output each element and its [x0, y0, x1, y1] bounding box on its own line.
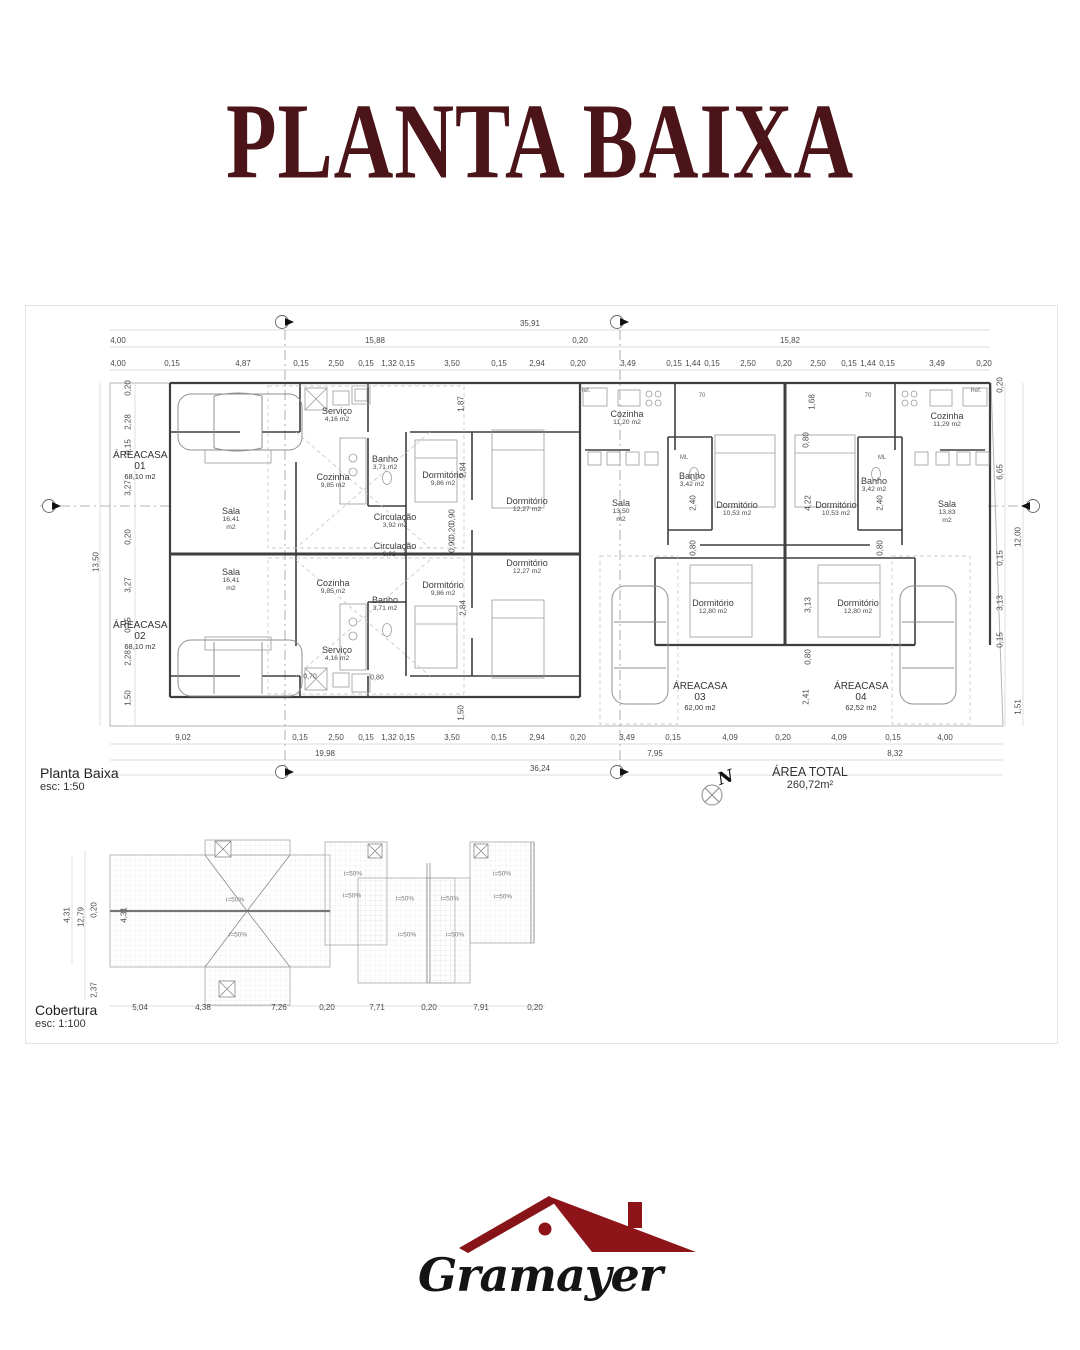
dim-value: 12,00 — [1014, 527, 1023, 547]
dim-value: 1,50 — [124, 690, 133, 706]
area: 4,16 m2 — [322, 416, 352, 424]
dim-value: 1,44 — [685, 359, 701, 368]
area: 9,85 m2 — [316, 482, 349, 490]
name: Dormitório — [506, 496, 548, 506]
dim-value: 0,20 — [976, 359, 992, 368]
dim-value: 2,94 — [529, 733, 545, 742]
dim-value: 4,31 — [120, 907, 129, 923]
room-label: Dormitório9,86 m2 — [422, 470, 464, 488]
dim-value: 0,15 — [879, 359, 895, 368]
dim-value: 0,15 — [358, 733, 374, 742]
area: 9,85 m2 — [316, 588, 349, 596]
dim-value: 0,15 — [399, 359, 415, 368]
name: Sala — [612, 498, 630, 508]
page: PLANTA BAIXA — [0, 0, 1080, 1350]
area: 62,00 m2 — [673, 703, 727, 712]
dim-value: 0,15 — [704, 359, 720, 368]
area: 9,86 m2 — [422, 590, 464, 598]
area: 16,41 m2 — [222, 577, 240, 593]
room-label: Dormitório9,86 m2 — [422, 580, 464, 598]
dim-value: 0,80 — [802, 432, 811, 448]
plan-caption-title: Planta Baixa — [40, 765, 119, 781]
dim-value: 0,15 — [491, 733, 507, 742]
roof-caption: Cobertura esc: 1:100 — [35, 1002, 97, 1031]
dim-value: 1,32 — [381, 359, 397, 368]
dim-value: 4,22 — [804, 495, 813, 511]
dim-value: 3,27 — [124, 480, 133, 496]
name: Dormitório — [837, 598, 879, 608]
dim-value: 4,00 — [110, 359, 126, 368]
room-label: Cozinha11,29 m2 — [930, 411, 963, 429]
dim-value: 8,32 — [887, 749, 903, 758]
dim-value: 7,95 — [647, 749, 663, 758]
dim-value: 1,68 — [808, 394, 817, 410]
name: Dormitório — [422, 470, 464, 480]
slope-label: i=50% — [343, 893, 361, 900]
dim-value: 1,87 — [457, 396, 466, 412]
dim-value: 2,37 — [90, 982, 99, 998]
name: ÁREACASA 03 — [673, 681, 727, 703]
dim-value: 3,50 — [444, 359, 460, 368]
name: Banho — [372, 595, 398, 605]
plan-sheet-card — [25, 305, 1058, 1044]
name: Cozinha — [610, 409, 643, 419]
dim-value: 0,80 — [689, 540, 698, 556]
area: 3,92 m2 — [374, 551, 417, 559]
plan-caption: Planta Baixa esc: 1:50 — [40, 765, 119, 794]
dim-value: 13,50 — [92, 552, 101, 572]
name: Banho — [861, 476, 887, 486]
dim-value: 4,38 — [195, 1003, 211, 1012]
dim-value: 0,20 — [996, 377, 1005, 393]
area: 3,92 m2 — [374, 522, 417, 530]
roof-caption-title: Cobertura — [35, 1002, 97, 1018]
dim-value: 2,40 — [876, 495, 885, 511]
area: 9,86 m2 — [422, 480, 464, 488]
slope-label: i=50% — [344, 871, 362, 878]
room-label: Cozinha9,85 m2 — [316, 578, 349, 596]
area: 62,52 m2 — [834, 703, 888, 712]
area: 10,53 m2 — [716, 510, 758, 518]
dim-value: 2,28 — [124, 650, 133, 666]
dim-value: 7,91 — [473, 1003, 489, 1012]
dim-value: 3,49 — [620, 359, 636, 368]
dim-value: 2,50 — [328, 733, 344, 742]
name: ÁREACASA 01 — [113, 450, 167, 472]
house-area-label: ÁREACASA 0362,00 m2 — [673, 681, 727, 712]
dim-row-bottom-3: 36,24 — [0, 764, 1080, 774]
appliance-label: 70 — [865, 393, 872, 399]
name: Serviço — [322, 645, 352, 655]
name: ÁREACASA 04 — [834, 681, 888, 703]
dim-value: 3,49 — [929, 359, 945, 368]
dim-row-top-3: 4,000,154,870,152,500,151,320,153,500,15… — [0, 359, 1080, 369]
slope-label: i=50% — [493, 871, 511, 878]
dim-value: 0,20 — [572, 336, 588, 345]
dim-value: 0,15 — [292, 733, 308, 742]
dim-value: 0,80 — [370, 675, 384, 682]
dim-value: 0,20 — [775, 733, 791, 742]
dim-value: 0,15 — [996, 550, 1005, 566]
area: 12,27 m2 — [506, 568, 548, 576]
dim-value: 0,15 — [399, 733, 415, 742]
name: Sala — [222, 506, 240, 516]
dim-value: 1,51 — [1014, 699, 1023, 715]
dim-value: 0,15 — [358, 359, 374, 368]
name: Dormitório — [815, 500, 857, 510]
dim-value: 0,20 — [776, 359, 792, 368]
room-label: Sala16,41 m2 — [222, 506, 240, 532]
name: Cozinha — [930, 411, 963, 421]
room-label: Dormitório12,27 m2 — [506, 496, 548, 514]
dim-value: 0,20 — [319, 1003, 335, 1012]
dim-value: 7,26 — [271, 1003, 287, 1012]
area-total: ÁREA TOTAL 260,72m² — [735, 765, 885, 792]
house-area-label: ÁREACASA 0462,52 m2 — [834, 681, 888, 712]
page-title: PLANTA BAIXA — [54, 78, 1026, 203]
name: Dormitório — [716, 500, 758, 510]
dim-value: 0,90 — [448, 537, 457, 553]
room-label: Banho3,42 m2 — [861, 476, 887, 494]
dim-value: 9,02 — [175, 733, 191, 742]
area: 13,50 m2 — [612, 508, 630, 524]
appliance-label: ML — [680, 455, 688, 461]
room-label: Cozinha11,20 m2 — [610, 409, 643, 427]
name: Dormitório — [692, 598, 734, 608]
roof-dim-row-bottom: 5,044,387,260,207,710,207,910,20 — [0, 1003, 1080, 1013]
area: 3,42 m2 — [679, 481, 705, 489]
dim-value: 2,50 — [740, 359, 756, 368]
dim-value: 0,20 — [124, 529, 133, 545]
dim-value: 0,20 — [527, 1003, 543, 1012]
dim-value: 2,50 — [328, 359, 344, 368]
room-label: Sala13,50 m2 — [612, 498, 630, 524]
dim-value: 2,28 — [124, 414, 133, 430]
dim-value: 0,15 — [293, 359, 309, 368]
slope-label: i=50% — [398, 932, 416, 939]
dim-value: 2,40 — [689, 495, 698, 511]
area: 3,71 m2 — [372, 464, 398, 472]
room-label: Cozinha9,85 m2 — [316, 472, 349, 490]
name: Sala — [222, 567, 240, 577]
area: 11,20 m2 — [610, 419, 643, 427]
dim-value: 3,13 — [804, 597, 813, 613]
room-label: Sala13,83 m2 — [938, 499, 956, 525]
area: 68,10 m2 — [113, 472, 167, 481]
dim-value: 2,41 — [802, 689, 811, 705]
area: 68,10 m2 — [113, 642, 167, 651]
name: Banho — [372, 454, 398, 464]
area: 12,80 m2 — [692, 608, 734, 616]
dim-value: 2,94 — [529, 359, 545, 368]
room-label: Dormitório12,27 m2 — [506, 558, 548, 576]
name: Dormitório — [506, 558, 548, 568]
area: 3,42 m2 — [861, 486, 887, 494]
dim-row-top-2: 4,0015,880,2015,82 — [0, 336, 1080, 346]
dim-value: 4,09 — [722, 733, 738, 742]
name: Cozinha — [316, 578, 349, 588]
dim-value: 0,70 — [303, 674, 317, 681]
dim-value: 15,82 — [780, 336, 800, 345]
dim-value: 4,00 — [110, 336, 126, 345]
dim-value: 1,50 — [457, 705, 466, 721]
slope-label: i=50% — [494, 894, 512, 901]
dim-value: 0,15 — [841, 359, 857, 368]
dim-value: 0,20 — [90, 902, 99, 918]
dim-value: 1,32 — [381, 733, 397, 742]
room-label: Dormitório12,80 m2 — [692, 598, 734, 616]
dim-value: 0,15 — [996, 632, 1005, 648]
name: ÁREACASA 02 — [113, 620, 167, 642]
name: Banho — [679, 471, 705, 481]
room-label: Sala16,41 m2 — [222, 567, 240, 593]
area: 13,83 m2 — [938, 509, 956, 525]
area: 3,71 m2 — [372, 605, 398, 613]
dim-value: 4,87 — [235, 359, 251, 368]
dim-value: 1,44 — [860, 359, 876, 368]
room-label: Banho3,71 m2 — [372, 595, 398, 613]
dim-value: 4,09 — [831, 733, 847, 742]
dim-value: 3,49 — [619, 733, 635, 742]
dim-value: 0,20 — [570, 359, 586, 368]
dim-value: 0,15 — [885, 733, 901, 742]
area: 12,27 m2 — [506, 506, 548, 514]
dim-value: 7,71 — [369, 1003, 385, 1012]
area: 16,41 m2 — [222, 516, 240, 532]
area-total-value: 260,72m² — [735, 779, 885, 792]
name: Cozinha — [316, 472, 349, 482]
dim-value: 0,80 — [876, 540, 885, 556]
appliance-label: Ref. — [970, 388, 981, 394]
dim-row-top-total: 35,91 — [0, 319, 1080, 329]
room-label: Banho3,71 m2 — [372, 454, 398, 472]
slope-label: i=50% — [229, 932, 247, 939]
dim-value: 12,79 — [77, 907, 86, 927]
dim-row-bottom-2: 19,987,958,32 — [0, 749, 1080, 759]
house-area-label: ÁREACASA 0168,10 m2 — [113, 450, 167, 481]
dim-value: 0,15 — [164, 359, 180, 368]
room-label: Dormitório10,53 m2 — [716, 500, 758, 518]
dim-value: 36,24 — [530, 764, 550, 773]
logo-wordmark: Gramayer — [0, 1248, 1080, 1302]
slope-label: i=50% — [441, 896, 459, 903]
slope-label: i=50% — [396, 896, 414, 903]
dim-value: 0,20 — [421, 1003, 437, 1012]
dim-value: 4,00 — [937, 733, 953, 742]
area: 12,80 m2 — [837, 608, 879, 616]
dim-value: 4,31 — [63, 907, 72, 923]
room-label: Circulação3,92 m2 — [374, 512, 417, 530]
name: Serviço — [322, 406, 352, 416]
house-area-label: ÁREACASA 0268,10 m2 — [113, 620, 167, 651]
dim-value: 15,88 — [365, 336, 385, 345]
dim-value: 2,50 — [810, 359, 826, 368]
name: Sala — [938, 499, 956, 509]
dim-value: 3,13 — [996, 595, 1005, 611]
dim-value: 2,84 — [459, 600, 468, 616]
logo-roof-icon — [459, 1196, 696, 1253]
dim-value: 0,15 — [665, 733, 681, 742]
slope-label: i=50% — [226, 897, 244, 904]
name: Circulação — [374, 541, 417, 551]
dim-value: 5,04 — [132, 1003, 148, 1012]
dim-value: 0,15 — [666, 359, 682, 368]
room-label: Dormitório10,53 m2 — [815, 500, 857, 518]
dim-value: 0,20 — [124, 380, 133, 396]
appliance-label: Ref. — [579, 388, 590, 394]
dim-value: 0,80 — [804, 649, 813, 665]
slope-label: i=50% — [446, 932, 464, 939]
name: Dormitório — [422, 580, 464, 590]
area-total-label: ÁREA TOTAL — [735, 765, 885, 779]
room-label: Dormitório12,80 m2 — [837, 598, 879, 616]
dim-value: 35,91 — [520, 319, 540, 328]
room-label: Circulação3,92 m2 — [374, 541, 417, 559]
area: 11,29 m2 — [930, 421, 963, 429]
dim-value: 3,27 — [124, 577, 133, 593]
area: 4,16 m2 — [322, 655, 352, 663]
roof-caption-scale: esc: 1:100 — [35, 1018, 97, 1031]
dim-value: 6,65 — [996, 464, 1005, 480]
dim-value: 19,98 — [315, 749, 335, 758]
area: 10,53 m2 — [815, 510, 857, 518]
room-label: Serviço4,16 m2 — [322, 645, 352, 663]
room-label: Serviço4,16 m2 — [322, 406, 352, 424]
dim-row-bottom-1: 9,020,152,500,151,320,153,500,152,940,20… — [0, 733, 1080, 743]
appliance-label: 70 — [699, 393, 706, 399]
room-label: Banho3,42 m2 — [679, 471, 705, 489]
dim-value: 0,15 — [491, 359, 507, 368]
plan-caption-scale: esc: 1:50 — [40, 781, 119, 794]
appliance-label: ML — [878, 455, 886, 461]
dim-value: 0,20 — [570, 733, 586, 742]
name: Circulação — [374, 512, 417, 522]
dim-value: 3,50 — [444, 733, 460, 742]
